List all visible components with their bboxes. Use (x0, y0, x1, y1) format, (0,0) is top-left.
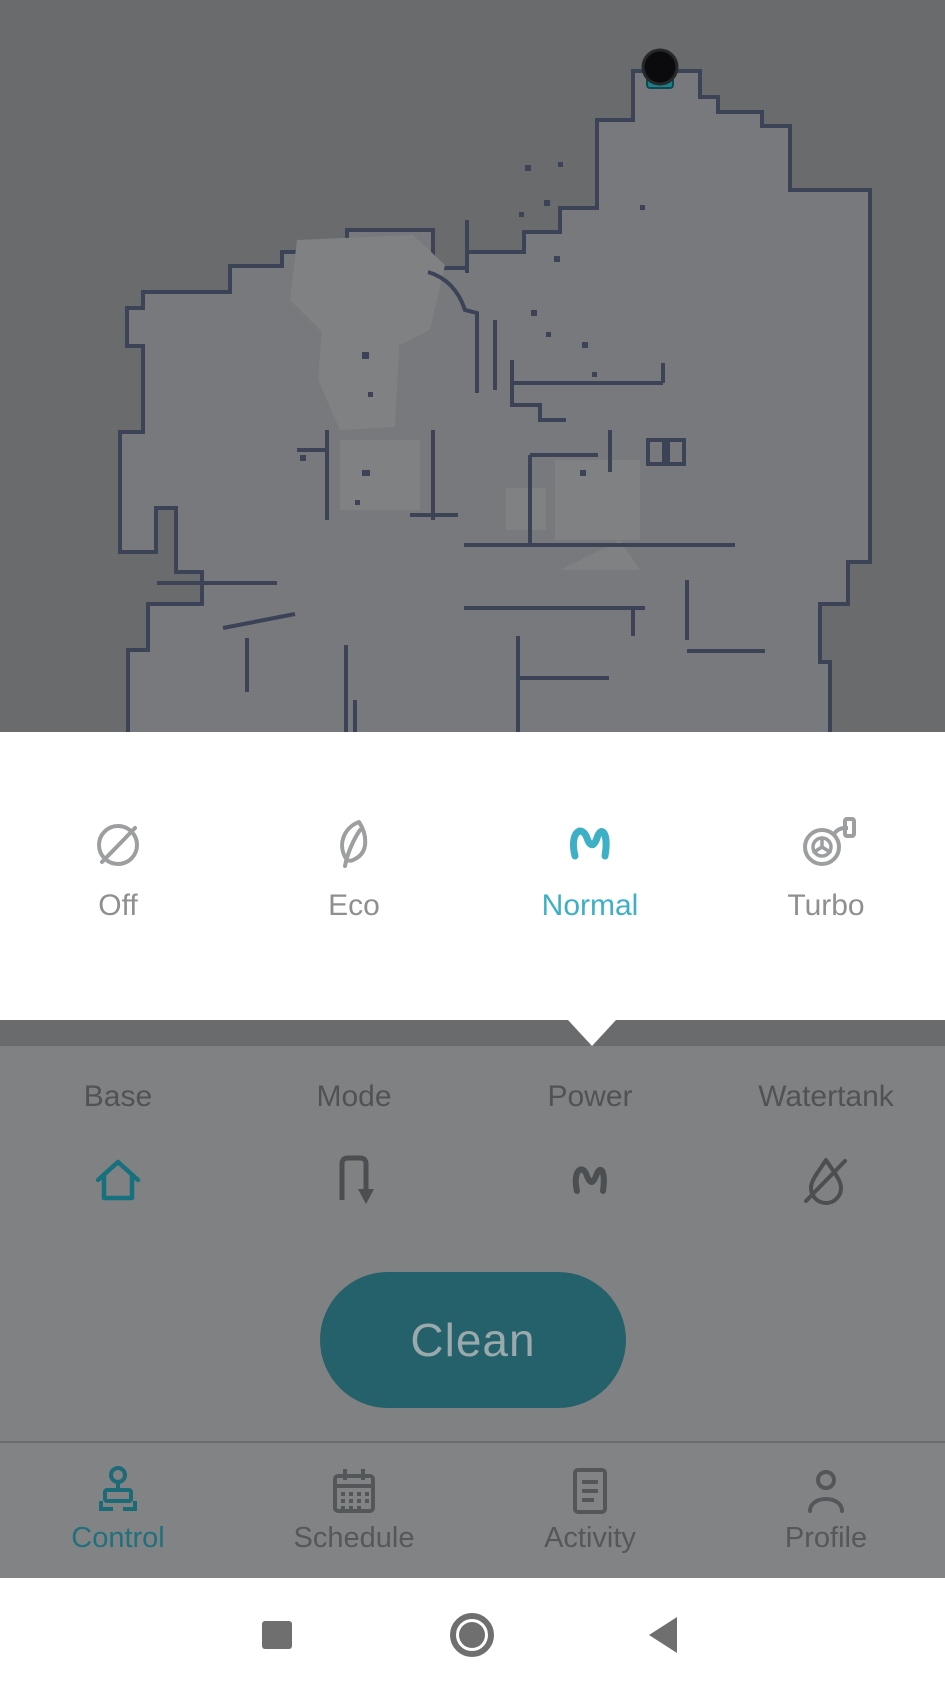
circle-icon (448, 1611, 496, 1659)
app-bottom-nav: Control Schedule (0, 1441, 945, 1578)
power-option-eco[interactable]: Eco (236, 732, 472, 1020)
tab-control-label: Control (71, 1520, 165, 1556)
mode-label: Mode (316, 1080, 391, 1113)
power-option-turbo[interactable]: Turbo (708, 732, 944, 1020)
tab-control[interactable]: Control (0, 1443, 236, 1578)
popup-pointer-notch (568, 1020, 616, 1046)
recents-button[interactable] (247, 1578, 307, 1692)
activity-icon (562, 1464, 618, 1518)
square-icon (261, 1620, 293, 1650)
profile-icon (798, 1464, 854, 1518)
back-button[interactable] (633, 1578, 693, 1692)
power-option-normal[interactable]: Normal (472, 732, 708, 1020)
power-button[interactable] (472, 1152, 708, 1208)
power-option-label: Eco (328, 888, 380, 924)
watertank-label: Watertank (758, 1080, 894, 1113)
clean-button-label: Clean (410, 1313, 535, 1367)
calendar-icon (326, 1464, 382, 1518)
tab-schedule-label: Schedule (294, 1520, 415, 1556)
home-icon (91, 1153, 145, 1207)
mode-button[interactable] (236, 1152, 472, 1208)
base-label: Base (84, 1080, 152, 1113)
phone-screen: Off Eco Normal (0, 0, 945, 1692)
wave-icon (563, 1153, 617, 1207)
joystick-icon (90, 1464, 146, 1518)
leaf-icon (321, 810, 387, 876)
water-off-icon (799, 1153, 853, 1207)
clean-button[interactable]: Clean (320, 1272, 626, 1408)
power-off-icon (85, 810, 151, 876)
tab-activity-label: Activity (544, 1520, 636, 1556)
robot-dock-marker (643, 50, 677, 88)
triangle-left-icon (648, 1616, 678, 1654)
control-panel: Base Mode Power Watertank (0, 1046, 945, 1441)
power-selector-popup: Off Eco Normal (0, 732, 945, 1020)
base-button[interactable] (0, 1152, 236, 1208)
power-option-label: Normal (542, 888, 639, 924)
power-option-off[interactable]: Off (0, 732, 236, 1020)
tab-schedule[interactable]: Schedule (236, 1443, 472, 1578)
tab-profile-label: Profile (785, 1520, 867, 1556)
watertank-button[interactable] (708, 1152, 944, 1208)
power-label: Power (547, 1080, 632, 1113)
system-nav-bar (0, 1578, 945, 1692)
tab-profile[interactable]: Profile (708, 1443, 944, 1578)
home-button[interactable] (442, 1578, 502, 1692)
tab-activity[interactable]: Activity (472, 1443, 708, 1578)
wave-icon (557, 810, 623, 876)
route-icon (327, 1153, 381, 1207)
power-option-label: Turbo (787, 888, 864, 924)
power-option-label: Off (98, 888, 137, 924)
turbo-icon (793, 810, 859, 876)
